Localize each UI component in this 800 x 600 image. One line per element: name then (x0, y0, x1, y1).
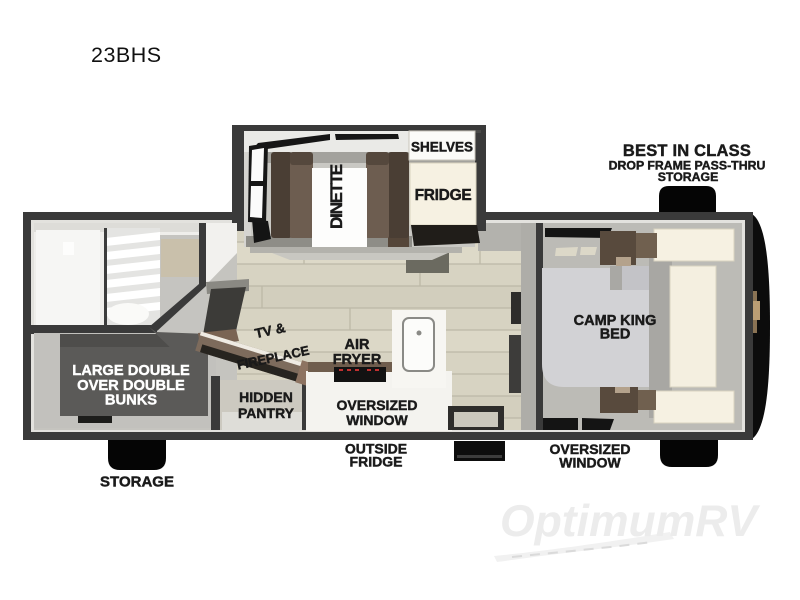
svg-text:BEST IN CLASS: BEST IN CLASS (623, 142, 751, 160)
svg-text:BUNKS: BUNKS (105, 393, 157, 409)
svg-text:SHELVES: SHELVES (411, 140, 473, 155)
svg-text:AIR: AIR (345, 337, 371, 353)
svg-text:OVERSIZED: OVERSIZED (337, 397, 418, 413)
svg-text:STORAGE: STORAGE (658, 170, 719, 184)
svg-text:OptimumRV: OptimumRV (500, 497, 760, 546)
svg-text:FRIDGE: FRIDGE (350, 454, 403, 470)
svg-text:BED: BED (600, 327, 631, 343)
svg-text:WINDOW: WINDOW (346, 412, 408, 428)
svg-text:HIDDEN: HIDDEN (239, 389, 293, 405)
svg-text:LARGE DOUBLE: LARGE DOUBLE (72, 363, 190, 379)
svg-text:STORAGE: STORAGE (100, 474, 174, 491)
svg-text:FRIDGE: FRIDGE (415, 187, 472, 204)
svg-text:FRYER: FRYER (333, 352, 382, 368)
svg-text:PANTRY: PANTRY (238, 405, 295, 421)
svg-text:DINETTE: DINETTE (327, 164, 346, 229)
svg-text:23BHS: 23BHS (91, 43, 162, 67)
svg-text:WINDOW: WINDOW (559, 455, 621, 471)
